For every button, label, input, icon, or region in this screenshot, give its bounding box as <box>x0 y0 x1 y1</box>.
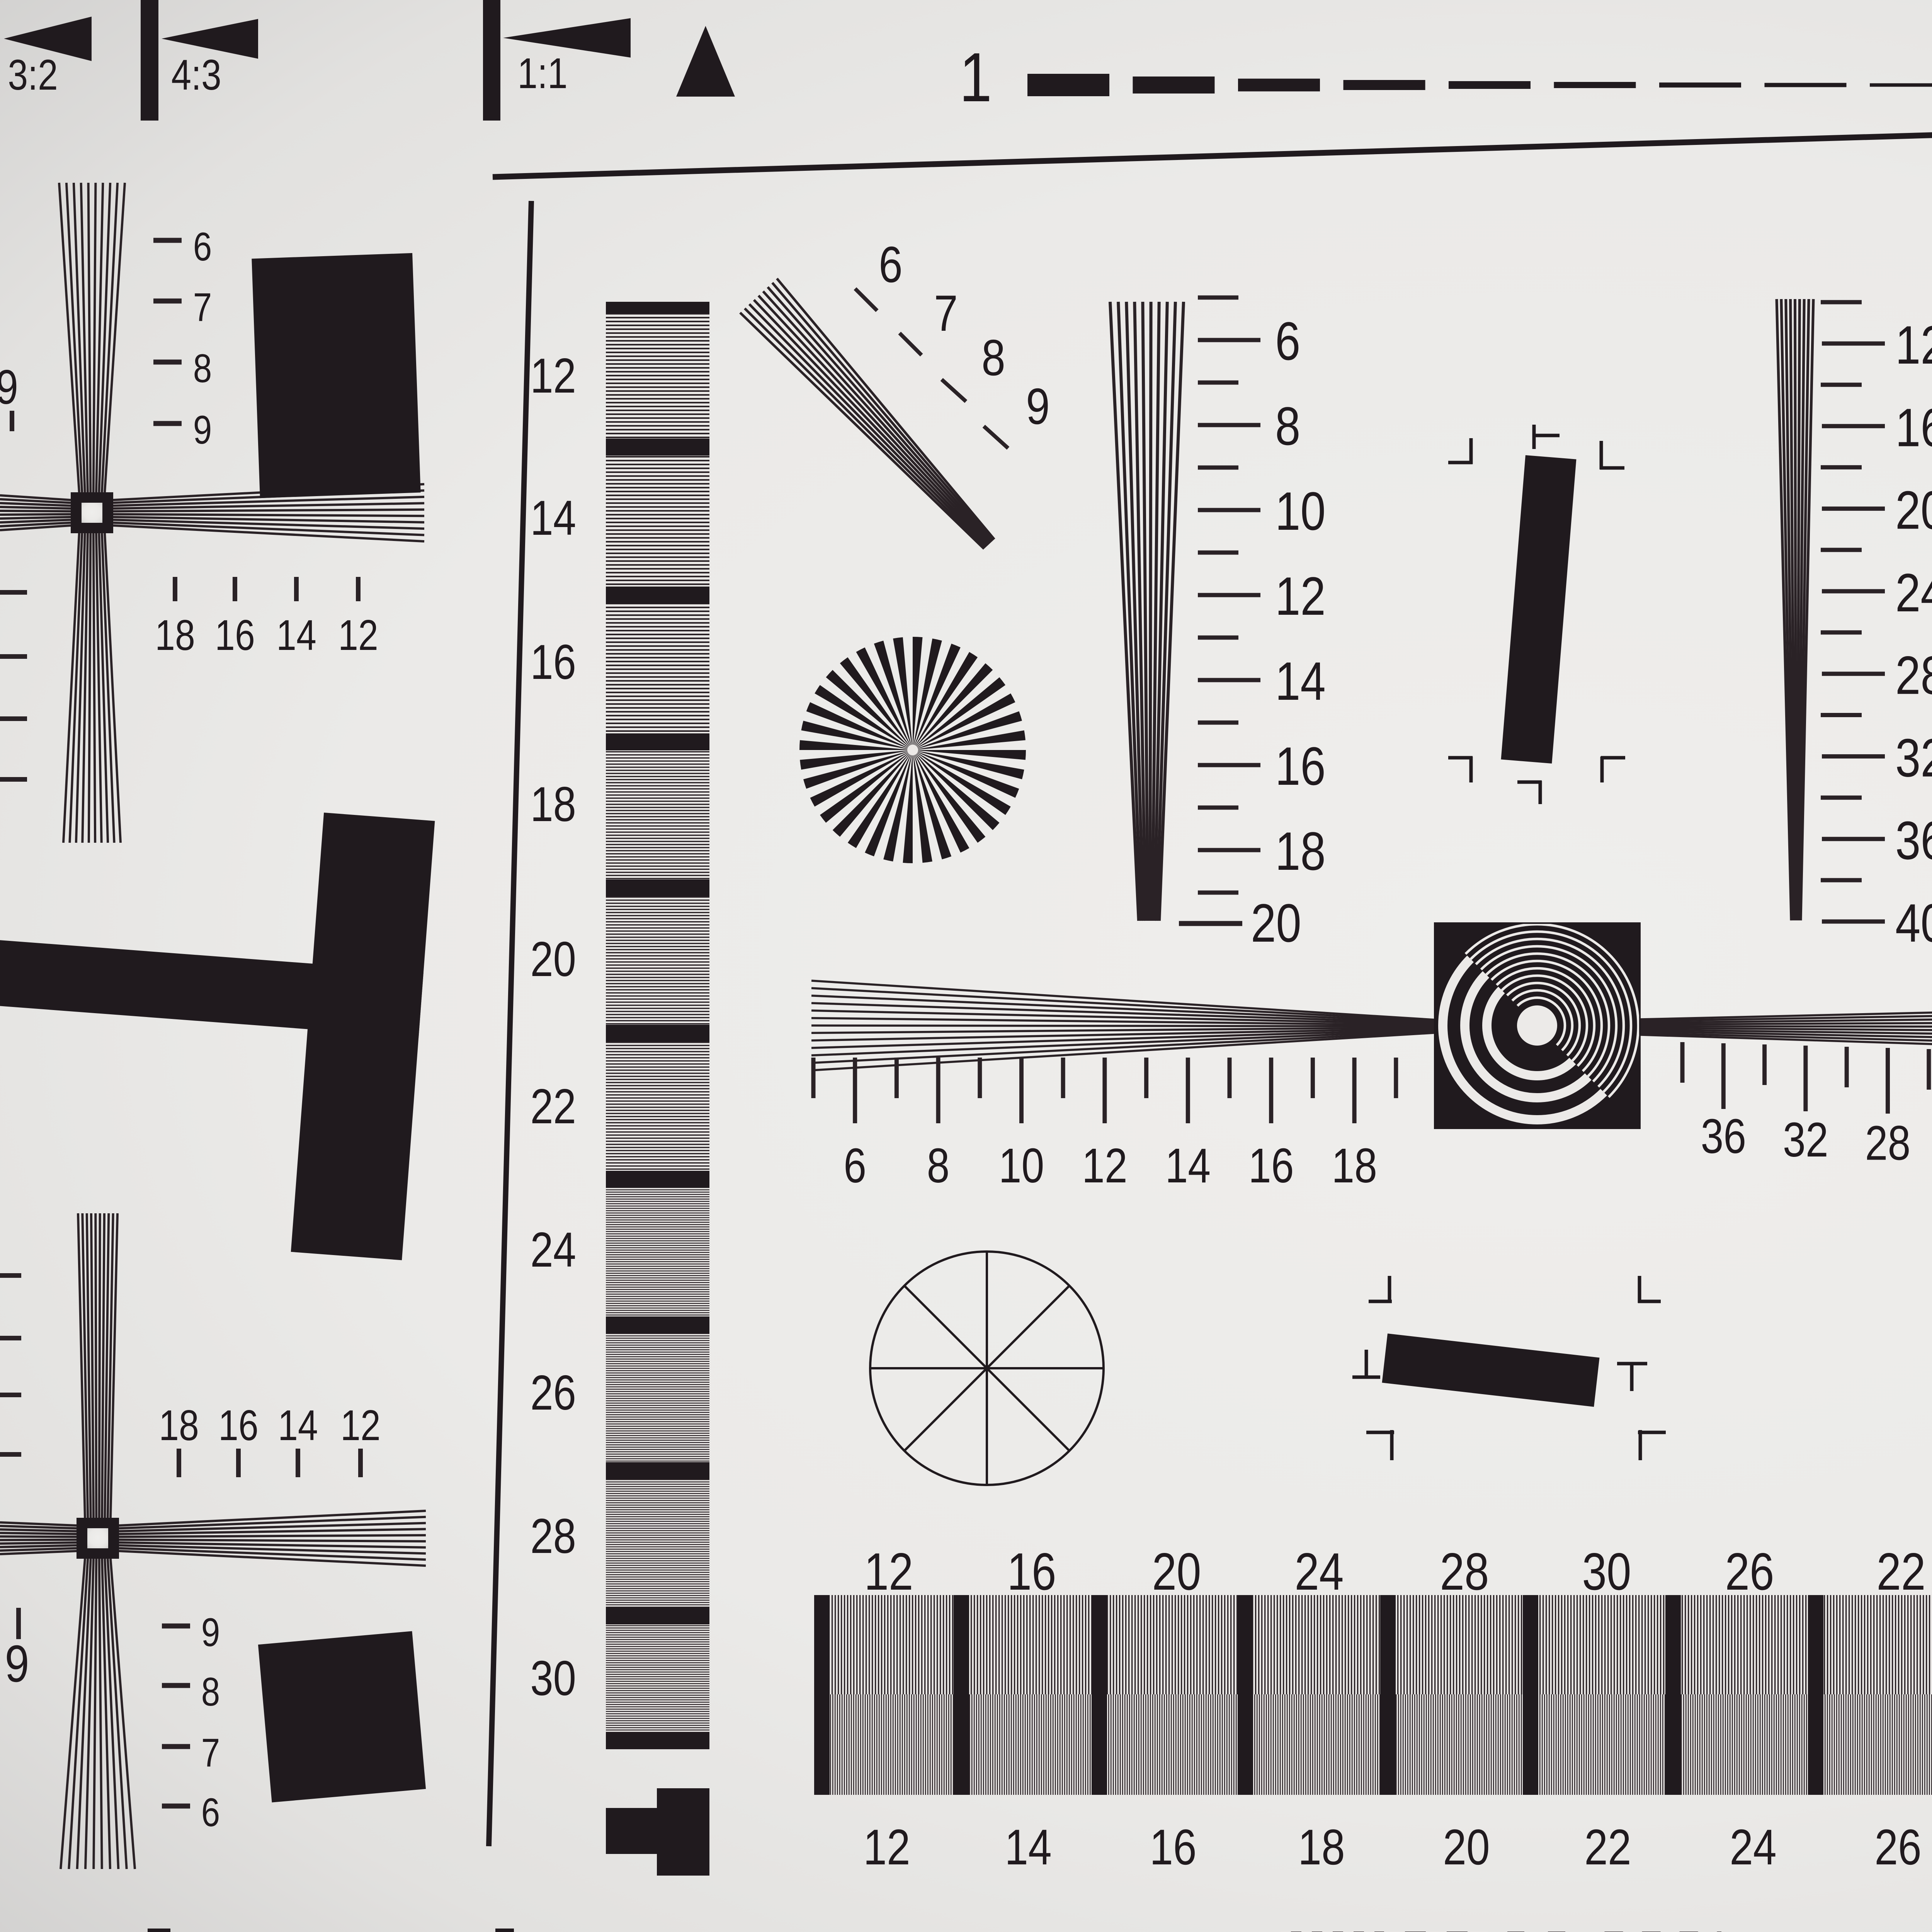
svg-text:14: 14 <box>1165 1138 1211 1193</box>
svg-text:32: 32 <box>1783 1112 1828 1167</box>
svg-text:22: 22 <box>1584 1819 1631 1875</box>
svg-text:30: 30 <box>1582 1542 1631 1601</box>
svg-text:6: 6 <box>844 1138 866 1193</box>
svg-text:22: 22 <box>1876 1542 1925 1601</box>
svg-text:18: 18 <box>1298 1819 1345 1875</box>
svg-text:36: 36 <box>1701 1109 1746 1163</box>
svg-text:6: 6 <box>193 224 212 269</box>
svg-text:12: 12 <box>1275 566 1326 626</box>
svg-text:16: 16 <box>215 611 255 659</box>
svg-text:26: 26 <box>1874 1819 1921 1875</box>
svg-text:9: 9 <box>0 361 18 414</box>
svg-text:7: 7 <box>934 285 958 342</box>
svg-text:16: 16 <box>1895 398 1932 458</box>
svg-text:12: 12 <box>340 1401 381 1449</box>
svg-text:16: 16 <box>218 1401 259 1449</box>
svg-text:16: 16 <box>1007 1542 1056 1601</box>
svg-text:18: 18 <box>530 777 576 832</box>
svg-text:7: 7 <box>193 285 212 330</box>
svg-text:16: 16 <box>1275 736 1326 796</box>
svg-text:28: 28 <box>530 1509 576 1563</box>
svg-text:18: 18 <box>159 1401 199 1449</box>
svg-text:20: 20 <box>1251 893 1301 953</box>
svg-text:12: 12 <box>864 1542 913 1601</box>
svg-text:14: 14 <box>1275 651 1326 711</box>
svg-text:24: 24 <box>1730 1819 1776 1875</box>
svg-text:14: 14 <box>278 1401 318 1449</box>
svg-text:8: 8 <box>193 346 212 391</box>
svg-text:8: 8 <box>981 329 1005 386</box>
svg-text:28: 28 <box>1865 1116 1911 1170</box>
svg-text:9: 9 <box>201 1610 220 1655</box>
svg-text:36: 36 <box>1895 811 1932 871</box>
svg-text:9: 9 <box>193 408 212 452</box>
svg-text:18: 18 <box>1332 1138 1377 1193</box>
svg-text:24: 24 <box>530 1222 576 1277</box>
svg-text:24: 24 <box>1895 563 1932 623</box>
svg-text:30: 30 <box>530 1651 576 1706</box>
svg-text:4:3: 4:3 <box>171 51 221 99</box>
svg-text:20: 20 <box>1443 1819 1490 1875</box>
svg-text:20: 20 <box>1152 1542 1201 1601</box>
svg-text:12: 12 <box>1082 1138 1128 1193</box>
svg-text:18: 18 <box>1275 821 1326 881</box>
svg-text:6: 6 <box>201 1790 220 1835</box>
svg-text:22: 22 <box>530 1079 576 1134</box>
svg-text:12: 12 <box>1895 315 1932 375</box>
svg-text:32: 32 <box>1895 728 1932 788</box>
svg-text:20: 20 <box>1895 480 1932 541</box>
svg-text:14: 14 <box>530 490 576 545</box>
svg-text:9: 9 <box>1026 378 1050 435</box>
svg-text:28: 28 <box>1895 645 1932 706</box>
svg-text:12: 12 <box>338 611 378 659</box>
svg-text:9: 9 <box>5 1635 29 1693</box>
svg-text:3:2: 3:2 <box>8 51 58 99</box>
svg-text:6: 6 <box>879 236 903 293</box>
svg-text:20: 20 <box>530 932 576 986</box>
svg-text:24: 24 <box>1294 1542 1344 1601</box>
svg-text:12: 12 <box>530 348 576 403</box>
svg-text:10: 10 <box>1275 481 1326 541</box>
svg-text:10: 10 <box>999 1138 1044 1193</box>
svg-text:16: 16 <box>530 634 576 689</box>
svg-text:8: 8 <box>1275 396 1300 456</box>
svg-text:7: 7 <box>201 1731 220 1776</box>
svg-text:14: 14 <box>276 611 316 659</box>
svg-text:26: 26 <box>1725 1542 1774 1601</box>
svg-text:6: 6 <box>1275 311 1300 371</box>
svg-text:40: 40 <box>1895 893 1932 953</box>
svg-text:26: 26 <box>530 1365 576 1420</box>
svg-text:18: 18 <box>155 611 195 659</box>
svg-text:12: 12 <box>863 1819 910 1875</box>
svg-text:8: 8 <box>201 1670 220 1714</box>
svg-text:28: 28 <box>1440 1542 1489 1601</box>
svg-text:1: 1 <box>959 39 992 116</box>
svg-text:1:1: 1:1 <box>517 49 568 97</box>
svg-text:16: 16 <box>1150 1819 1196 1875</box>
svg-text:16: 16 <box>1248 1138 1294 1193</box>
svg-text:14: 14 <box>1005 1819 1051 1875</box>
svg-text:8: 8 <box>927 1138 950 1193</box>
